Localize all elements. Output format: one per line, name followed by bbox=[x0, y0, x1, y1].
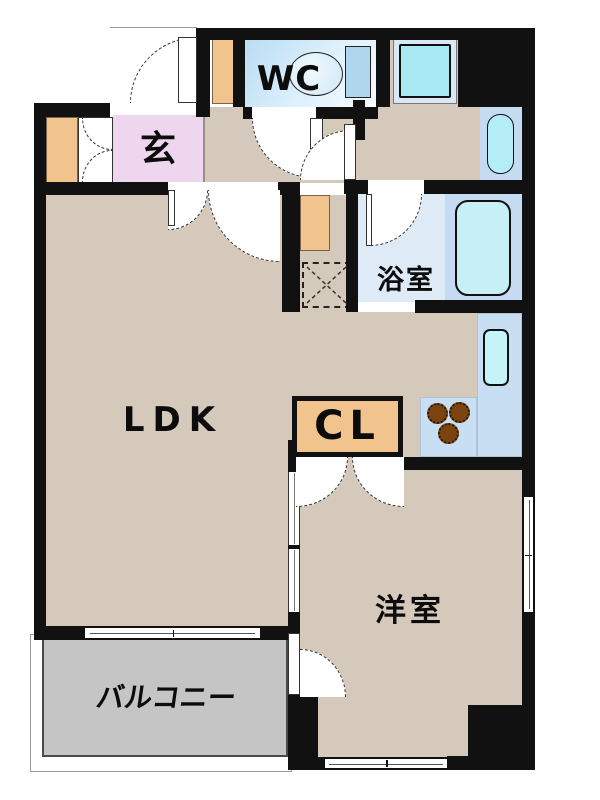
western-room-door-leaf bbox=[288, 633, 300, 695]
genkan-label: 玄 bbox=[113, 132, 203, 168]
pillar-bottom-right bbox=[468, 705, 532, 757]
wall-ldk-bottom-b bbox=[260, 626, 288, 640]
western-room-label: 洋室 bbox=[328, 596, 492, 627]
wc-label: WC bbox=[243, 62, 335, 96]
doorway-bathroom bbox=[368, 180, 424, 194]
stove-burner-icon bbox=[427, 403, 448, 424]
pillar-top-right bbox=[458, 28, 535, 107]
entry-wall-accent bbox=[46, 117, 78, 183]
mid-wall-accent bbox=[300, 195, 330, 251]
washing-machine-pan-icon bbox=[399, 44, 451, 98]
top-wall-accent bbox=[212, 38, 235, 104]
wall-mid-vertical bbox=[282, 182, 300, 312]
wall-entry-step bbox=[196, 28, 210, 117]
stove-burner-icon bbox=[449, 402, 470, 423]
wall-kitchen-bottom bbox=[403, 457, 535, 470]
ldk-label: LDK bbox=[78, 403, 268, 437]
ldk-door-leaf bbox=[168, 190, 175, 226]
pipe-space-icon bbox=[302, 262, 351, 308]
balcony-label: バルコニー bbox=[46, 684, 286, 712]
wall-bath-bottom bbox=[415, 300, 535, 313]
stove-burner-icon bbox=[438, 423, 459, 444]
wall-wc-bottom-a bbox=[243, 107, 252, 119]
entry-recess-line bbox=[110, 27, 197, 28]
closet-label: CL bbox=[294, 406, 401, 446]
wall-top-left bbox=[34, 103, 110, 117]
entrance-door-leaf bbox=[178, 37, 197, 103]
partition-sliding-door-b bbox=[288, 549, 300, 612]
bathtub-icon bbox=[455, 200, 511, 296]
genkan-step-line bbox=[203, 117, 205, 183]
window-western-room-bottom bbox=[325, 757, 447, 770]
wall-ldk-bottom-a bbox=[34, 626, 85, 640]
window-balcony-slider bbox=[85, 626, 260, 640]
wall-wc-right bbox=[376, 28, 390, 107]
washbasin-icon bbox=[487, 114, 514, 174]
wall-genkan-bottom bbox=[34, 182, 168, 195]
washroom-door-leaf bbox=[344, 124, 356, 180]
kitchen-sink-icon bbox=[483, 329, 509, 386]
wall-bottom-stub bbox=[300, 757, 325, 770]
wall-bottom-right bbox=[447, 756, 535, 770]
bathroom-door-leaf bbox=[366, 194, 372, 246]
bathroom-label: 浴室 bbox=[350, 267, 462, 294]
window-western-room-right bbox=[522, 497, 535, 612]
floor-plan: 玄 WC 浴室 LDK CL 洋室 バルコニー bbox=[0, 0, 600, 800]
toilet-tank bbox=[345, 46, 371, 98]
wall-wc-bottom-b bbox=[316, 107, 378, 119]
